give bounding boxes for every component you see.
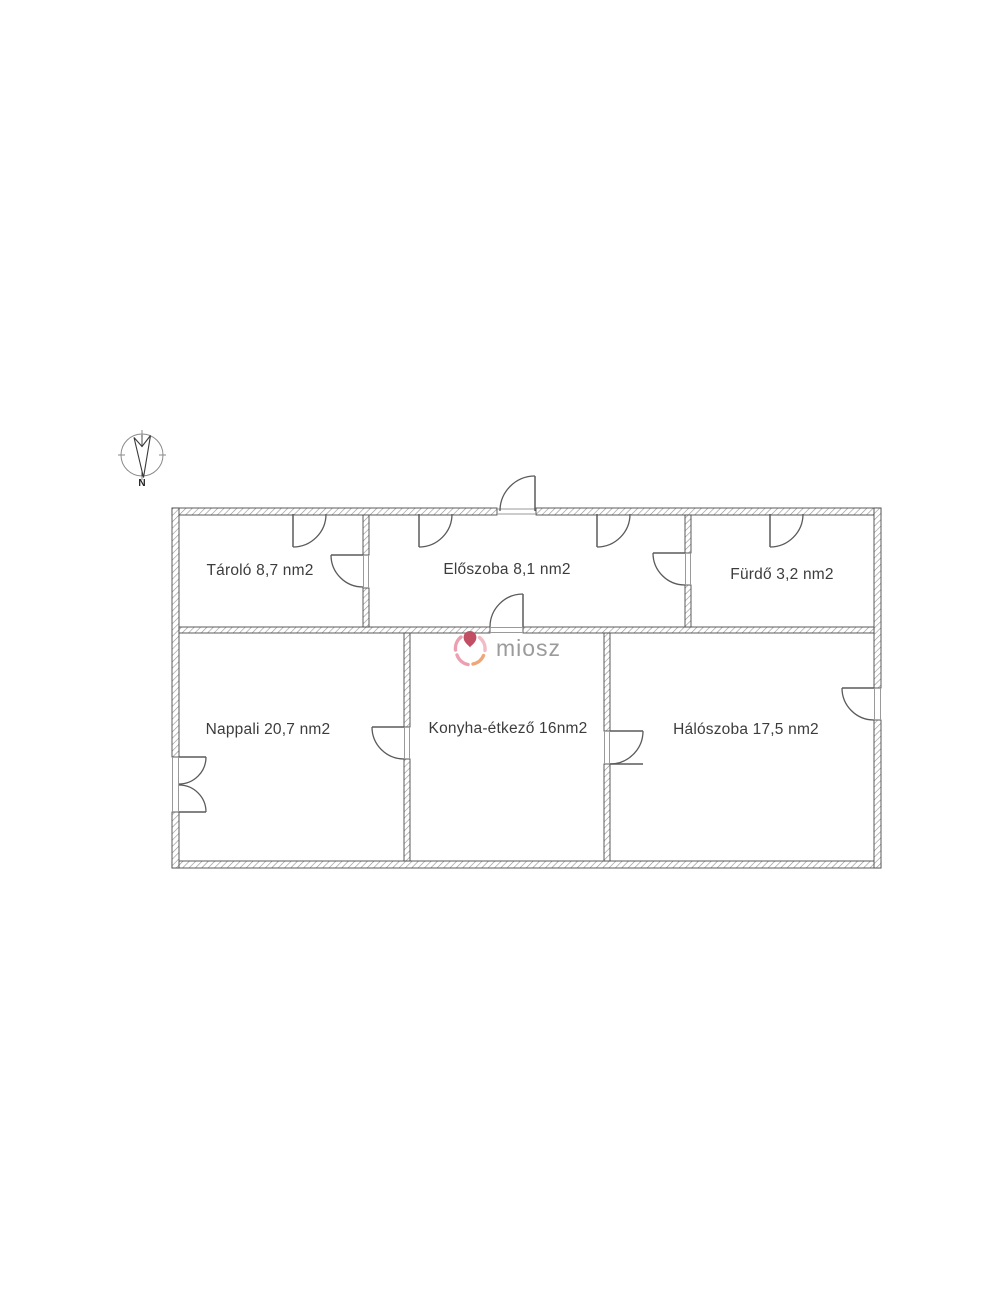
room-label-eloszoba: Előszoba 8,1 nm2: [443, 561, 570, 579]
wall-konyha-haloszoba-upper: [604, 633, 610, 731]
wall-eloszoba-furdo-upper: [685, 515, 691, 553]
door-tarolo-eloszoba: [331, 555, 363, 587]
door-furdo-top: [770, 514, 803, 547]
wall-konyha-haloszoba-lower: [604, 764, 610, 861]
compass-north-label: N: [138, 478, 145, 489]
logo-figure-top: [464, 631, 477, 648]
threshold-konyha-haloszoba: [605, 731, 610, 764]
logo-figure-bottom-left: [457, 655, 468, 665]
wall-tarolo-eloszoba-lower: [363, 588, 369, 627]
logo-figure-bottom-right: [473, 656, 484, 665]
french-door-nappali-left: [179, 757, 206, 812]
wall-nappali-konyha-upper: [404, 633, 410, 727]
room-label-konyha-etkezo: Konyha-étkező 16nm2: [429, 720, 588, 738]
room-label-nappali: Nappali 20,7 nm2: [206, 721, 331, 739]
door-nappali-konyha: [372, 727, 404, 759]
threshold-tarolo-eloszoba: [364, 555, 369, 588]
wall-top-right-segment: [536, 508, 881, 515]
threshold-entry: [497, 509, 536, 514]
threshold-nappali-konyha: [405, 727, 410, 759]
watermark-text: miosz: [496, 637, 561, 660]
miosz-logo-icon: [451, 629, 489, 667]
wall-right-upper-segment: [874, 508, 881, 688]
wall-nappali-konyha-lower: [404, 759, 410, 861]
room-label-furdo: Fürdő 3,2 nm2: [730, 566, 833, 584]
watermark-logo: miosz: [451, 629, 561, 667]
wall-top-left-segment: [172, 508, 497, 515]
logo-figure-right: [480, 638, 486, 651]
wall-tarolo-eloszoba-upper: [363, 515, 369, 555]
door-eloszoba-furdo: [653, 553, 685, 585]
door-eloszoba-top-right: [597, 514, 630, 547]
wall-left-lower-segment: [172, 812, 179, 868]
floorplan-page: N: [0, 0, 1000, 1294]
door-konyha-haloszoba: [610, 731, 643, 764]
threshold-nappali-left: [173, 757, 179, 812]
threshold-eloszoba-furdo: [686, 553, 691, 585]
wall-left-upper-segment: [172, 508, 179, 757]
compass-icon: N: [118, 430, 166, 489]
door-entry: [500, 476, 535, 511]
wall-eloszoba-furdo-lower: [685, 585, 691, 627]
logo-figure-left: [455, 637, 461, 650]
wall-bottom: [172, 861, 881, 868]
room-label-haloszoba: Hálószoba 17,5 nm2: [673, 721, 819, 739]
wall-mid-horizontal-left: [179, 627, 490, 633]
door-eloszoba-top-left: [419, 514, 452, 547]
room-label-tarolo: Tároló 8,7 nm2: [206, 562, 313, 580]
door-tarolo-top: [293, 514, 326, 547]
threshold-haloszoba-right: [875, 688, 881, 720]
door-haloszoba-right: [842, 688, 874, 720]
wall-right-lower-segment: [874, 720, 881, 868]
door-eloszoba-konyha: [490, 594, 523, 627]
wall-mid-horizontal-right: [523, 627, 874, 633]
